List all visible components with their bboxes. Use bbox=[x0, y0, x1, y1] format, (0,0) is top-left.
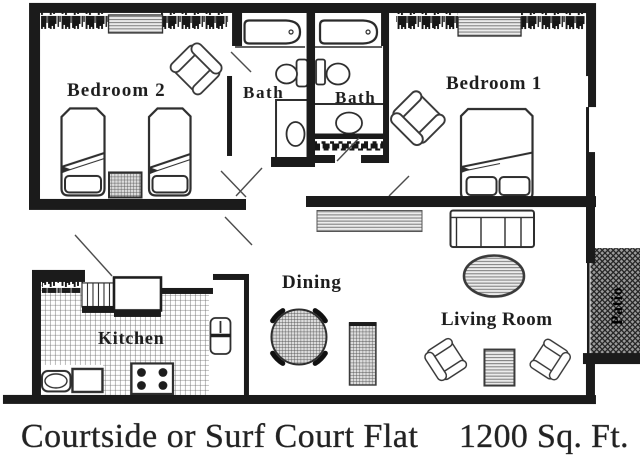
svg-text:Patio: Patio bbox=[609, 287, 626, 325]
svg-text:Living Room: Living Room bbox=[441, 309, 553, 330]
svg-text:Bedroom 2: Bedroom 2 bbox=[67, 80, 166, 101]
svg-text:1200 Sq. Ft.: 1200 Sq. Ft. bbox=[459, 418, 629, 455]
svg-text:Bedroom 1: Bedroom 1 bbox=[446, 73, 542, 94]
svg-text:Dining: Dining bbox=[282, 272, 342, 293]
svg-text:Kitchen: Kitchen bbox=[98, 328, 165, 348]
svg-text:Courtside or Surf Court Flat: Courtside or Surf Court Flat bbox=[21, 418, 418, 455]
